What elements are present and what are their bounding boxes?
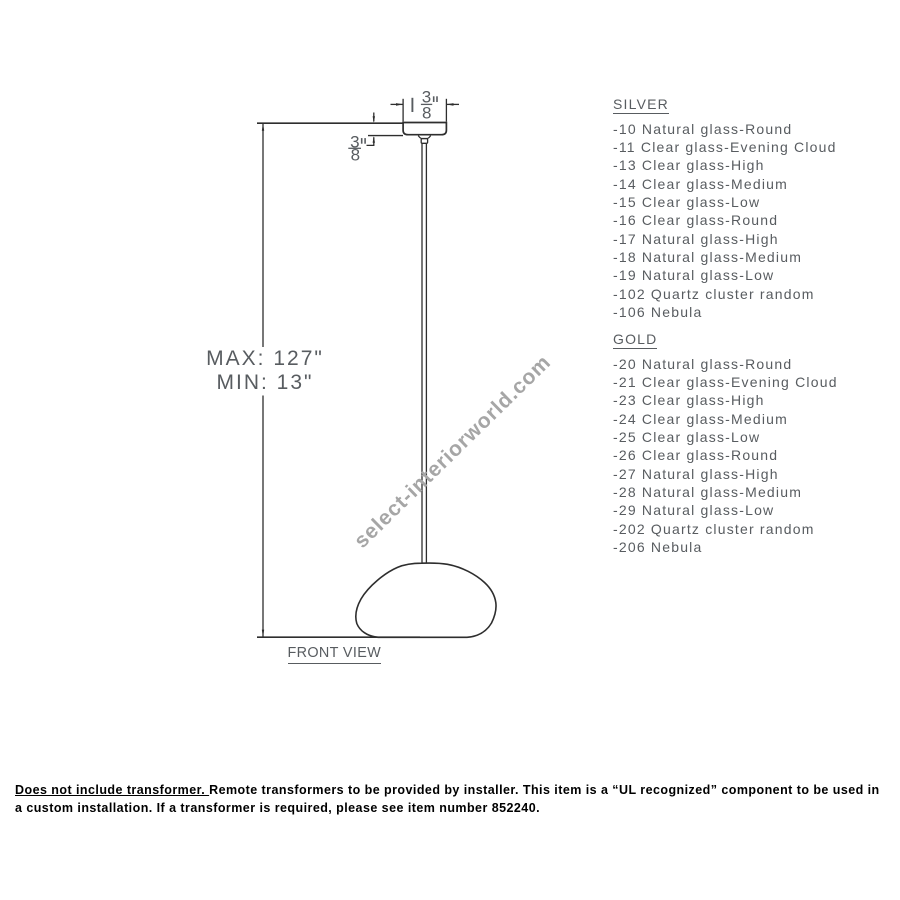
svg-text:8: 8 xyxy=(422,104,431,123)
